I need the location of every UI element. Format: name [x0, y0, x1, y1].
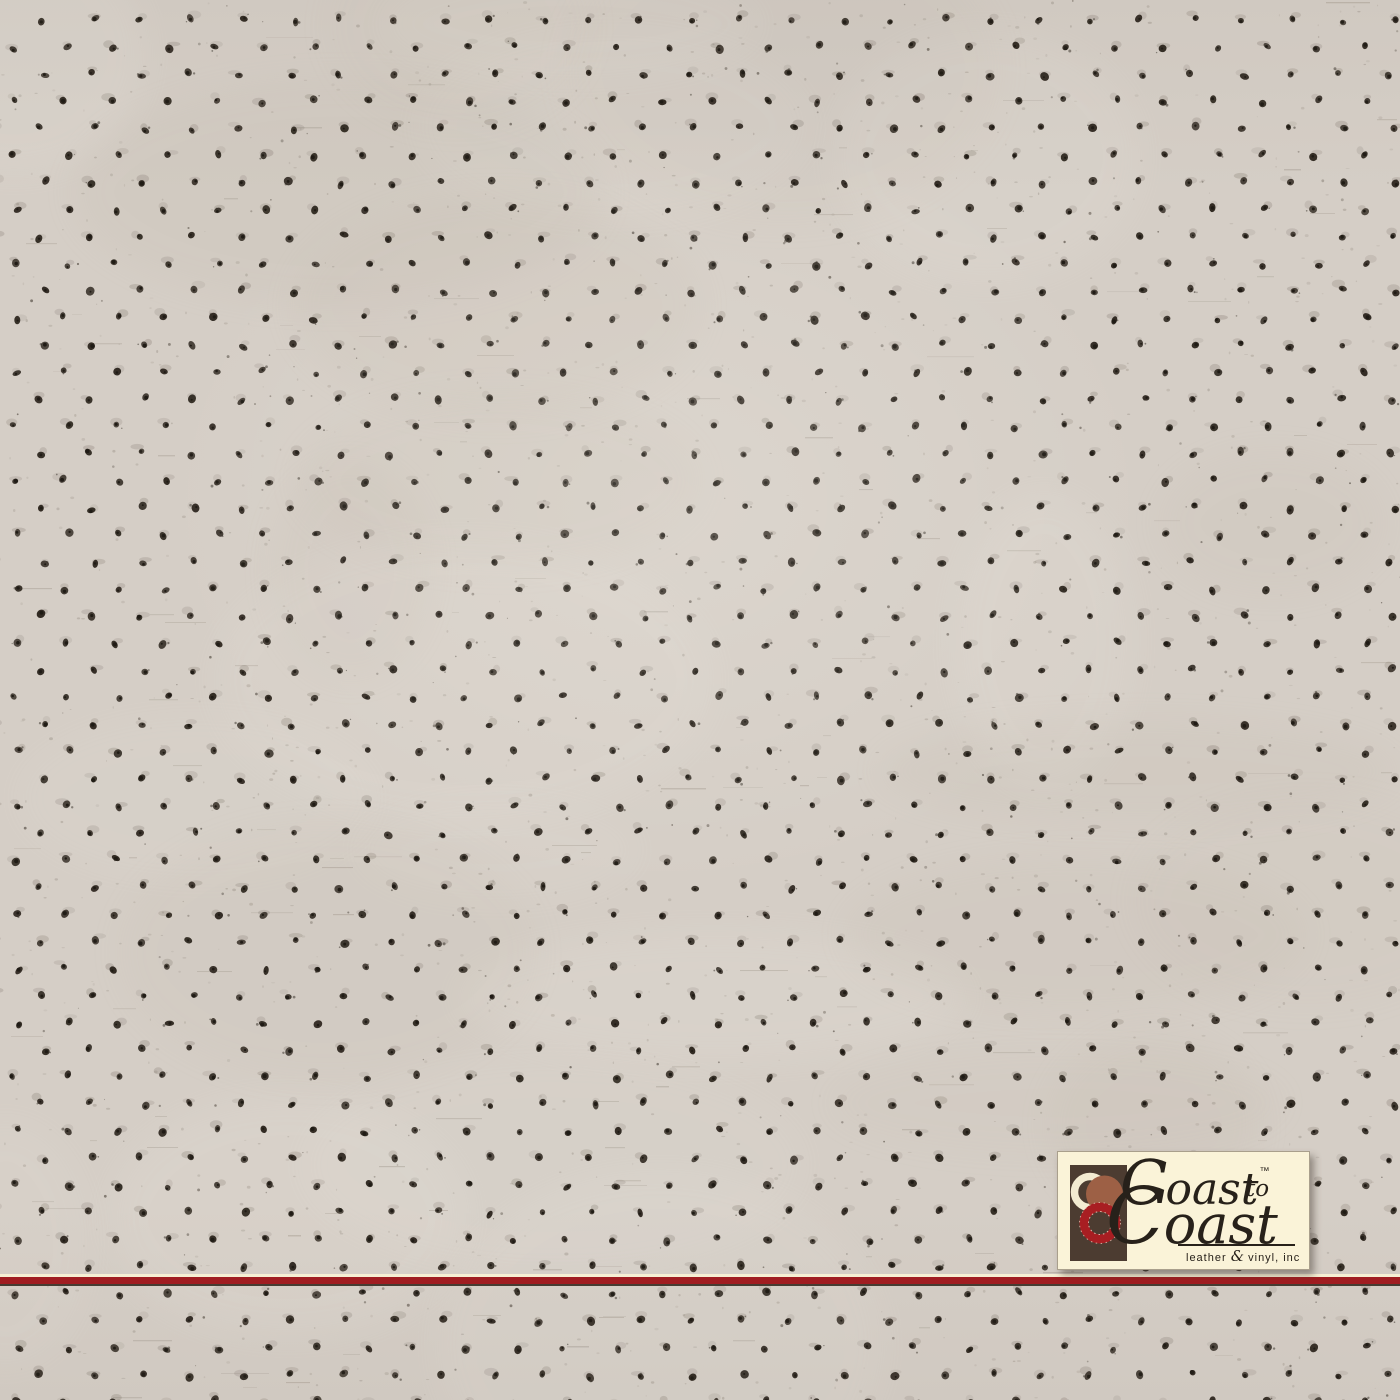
logo-word-coast-2: Coast [1106, 1162, 1278, 1293]
logo-tagline: leather & vinyl, inc [1186, 1247, 1300, 1265]
ampersand: & [1231, 1247, 1244, 1265]
logo-badge: Coast™ to Coast leather & vinyl, inc [1057, 1151, 1310, 1270]
logo-underline [1178, 1244, 1295, 1246]
leather-swatch-photo: Coast™ to Coast leather & vinyl, inc [0, 0, 1400, 1400]
